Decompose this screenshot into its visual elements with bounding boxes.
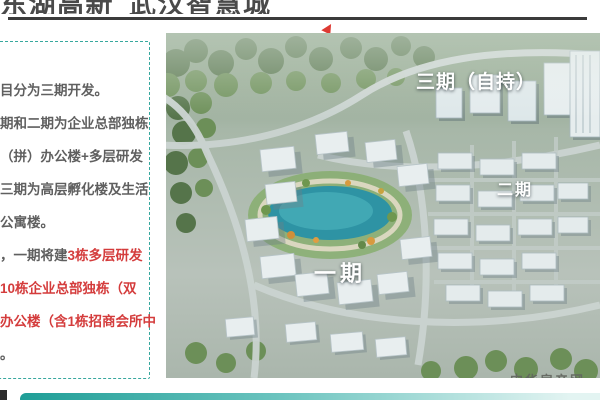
title-underline xyxy=(8,17,587,20)
presentation-slide: 东湖高新 武汉智慧城 目分为三期开发。 期和二期为企业总部独栋 （拼）办公楼+多… xyxy=(0,0,600,400)
body-line: 三期为高层孵化楼及生活 xyxy=(0,173,152,206)
slide-title-text: 东湖高新 武汉智慧城 xyxy=(0,0,430,14)
highlight-line: ，一期将建3栋多层研发 xyxy=(0,239,152,272)
bottom-accent-bar xyxy=(20,393,600,400)
bottom-left-chip xyxy=(0,390,7,400)
body-line: 期和二期为企业总部独栋 xyxy=(0,107,152,140)
highlight-line: 10栋企业总部独栋（双 xyxy=(0,272,152,305)
body-line: 目分为三期开发。 xyxy=(0,74,152,107)
body-line: 。 xyxy=(0,338,152,371)
slide-title-clipped: 东湖高新 武汉智慧城 xyxy=(0,0,430,14)
highlight-line: 办公楼（含1栋招商会所中 xyxy=(0,305,152,338)
description-text-block: 目分为三期开发。 期和二期为企业总部独栋 （拼）办公楼+多层研发 三期为高层孵化… xyxy=(0,74,152,371)
phase-1-label: 一期 xyxy=(314,256,366,288)
body-line: 公寓楼。 xyxy=(0,206,152,239)
phase-2-label: 二期 xyxy=(497,176,533,200)
phase-3-label: 三期（自持） xyxy=(416,67,536,94)
body-line: （拼）办公楼+多层研发 xyxy=(0,140,152,173)
aerial-rendering-image: 三期（自持） 二期 一期 中华房产网 xyxy=(166,33,600,378)
line-prefix: ，一期将建 xyxy=(0,248,68,263)
watermark-text: 中华房产网 xyxy=(510,370,585,378)
red-highlight: 3栋多层研发 xyxy=(68,248,143,263)
